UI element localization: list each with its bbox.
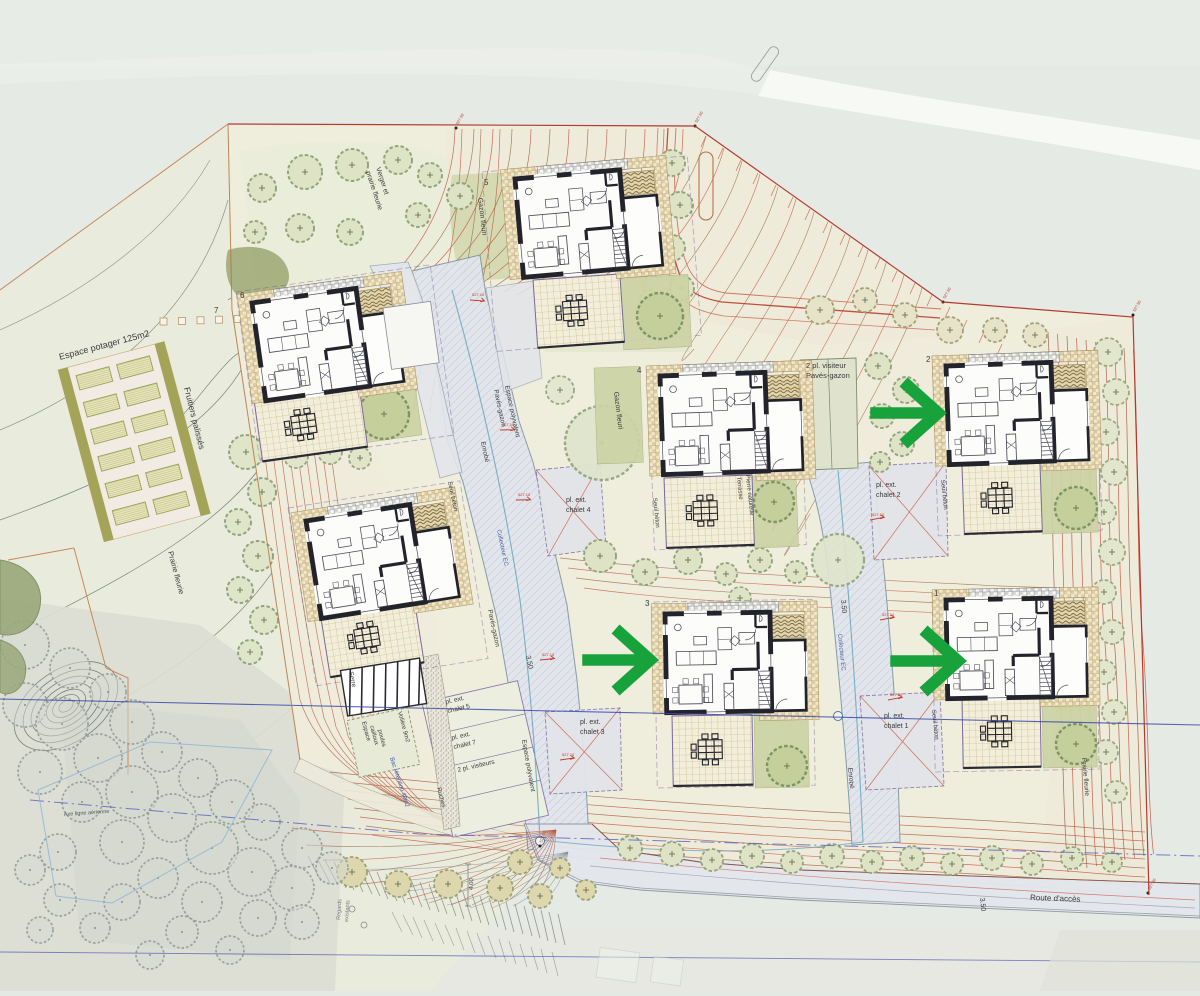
svg-text:2 pl. visiteur: 2 pl. visiteur (806, 361, 847, 370)
svg-text:4: 4 (637, 366, 642, 375)
svg-text:pl. ext.: pl. ext. (884, 713, 905, 720)
svg-text:3.50: 3.50 (978, 897, 986, 911)
svg-text:Route d'accès: Route d'accès (1030, 893, 1081, 904)
svg-text:527.10: 527.10 (872, 512, 885, 517)
svg-text:chalet 1: chalet 1 (884, 723, 909, 730)
svg-text:4.00: 4.00 (469, 878, 475, 891)
svg-text:527.10: 527.10 (562, 752, 575, 757)
svg-text:pl. ext.: pl. ext. (566, 497, 587, 504)
svg-text:pl. ext.: pl. ext. (876, 482, 897, 489)
svg-text:527.10: 527.10 (502, 422, 515, 427)
svg-text:3: 3 (645, 599, 650, 608)
svg-text:chalet 3: chalet 3 (580, 729, 605, 736)
svg-text:6: 6 (240, 291, 245, 300)
svg-text:527.10: 527.10 (518, 492, 531, 497)
svg-text:5: 5 (484, 178, 489, 187)
svg-text:2: 2 (926, 355, 931, 364)
svg-text:Pavés-gazon: Pavés-gazon (806, 371, 850, 380)
svg-text:527.10: 527.10 (890, 692, 903, 697)
svg-text:527.10: 527.10 (472, 292, 485, 297)
svg-text:1: 1 (934, 589, 939, 598)
svg-text:3.50: 3.50 (839, 599, 847, 613)
svg-text:7: 7 (214, 306, 219, 315)
svg-text:pl. ext.: pl. ext. (580, 719, 601, 726)
svg-text:chalet 4: chalet 4 (566, 507, 591, 514)
svg-text:527.10: 527.10 (882, 612, 895, 617)
svg-text:chalet 2: chalet 2 (876, 492, 901, 499)
svg-text:527.10: 527.10 (542, 652, 555, 657)
